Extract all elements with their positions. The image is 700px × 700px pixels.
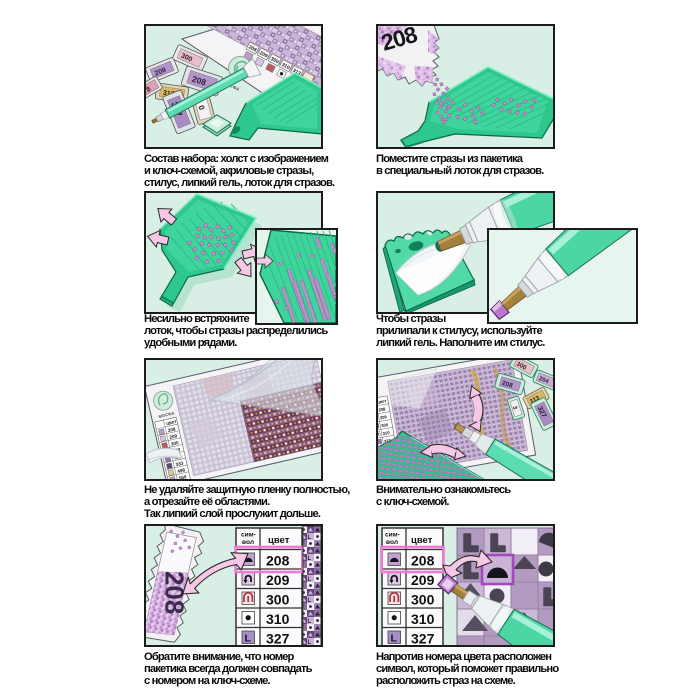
svg-text:208: 208	[266, 553, 290, 569]
svg-text:208: 208	[411, 553, 435, 569]
svg-text:550: 550	[178, 474, 187, 481]
svg-text:цвет: цвет	[411, 535, 433, 546]
svg-text:вол: вол	[386, 539, 398, 546]
svg-text:L: L	[245, 633, 252, 645]
svg-text:327: 327	[411, 631, 435, 647]
svg-text:327: 327	[266, 631, 290, 647]
svg-text:310: 310	[411, 611, 435, 627]
svg-text:310: 310	[266, 611, 290, 627]
svg-text:209: 209	[266, 572, 290, 588]
svg-text:вол: вол	[242, 539, 254, 546]
svg-text:300: 300	[411, 592, 435, 608]
svg-text:сим-: сим-	[385, 532, 400, 539]
svg-text:цвет: цвет	[268, 535, 290, 546]
svg-text:L: L	[391, 633, 398, 645]
svg-text:300: 300	[266, 592, 290, 608]
svg-text:209: 209	[411, 572, 435, 588]
svg-text:сим-: сим-	[241, 532, 256, 539]
